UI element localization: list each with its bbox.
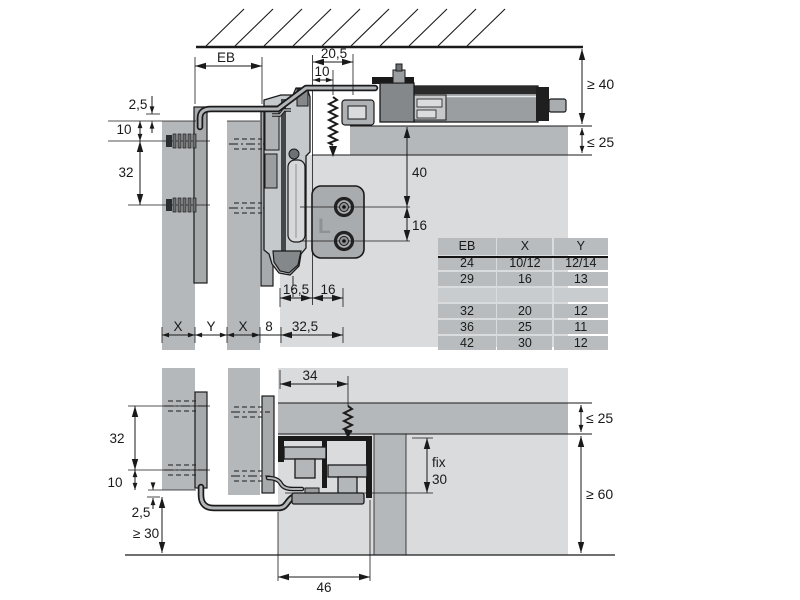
dim-label-x2: X [238, 319, 247, 334]
table-cell: 20 [497, 304, 552, 319]
dim-label-eb: EB [217, 50, 235, 65]
dim-label-46: 46 [316, 580, 331, 595]
table-cell: 29 [438, 272, 496, 287]
glide-base-plate [292, 493, 364, 504]
table-cell: 42 [438, 336, 496, 351]
dimension-min60: ≥ 60 [581, 436, 613, 553]
track-mount-block [380, 83, 414, 122]
table-header-eb: EB [438, 238, 496, 255]
inner-door-panel-upper [227, 121, 260, 350]
table-cell-empty [554, 288, 608, 303]
dim-label-10-track: 10 [314, 64, 329, 79]
dimension-max25-upper: ≤ 25 [582, 128, 614, 153]
outer-door-panel-lower [162, 368, 195, 490]
dim-label-34: 34 [302, 368, 318, 383]
technical-drawing-canvas: L ≥ 40 ≤ 25 EB 20,5 10 [0, 0, 800, 600]
cabinet-interior-lower [278, 368, 568, 403]
cabinet-bottom-panel [278, 403, 568, 434]
dim-label-x1: X [173, 319, 182, 334]
table-cell: 12/14 [554, 256, 608, 271]
dimension-10-lower: 10 [107, 470, 135, 490]
table-header-underline [438, 256, 608, 258]
dim-label-2-5-upper: 2,5 [129, 97, 148, 112]
dim-label-40: 40 [412, 165, 427, 180]
dim-label-32-lower: 32 [109, 431, 124, 446]
table-cell-empty [438, 288, 496, 303]
track-end-cap [536, 87, 549, 121]
table-cell: 36 [438, 320, 496, 335]
dim-label-16-right: 16 [320, 282, 335, 297]
dim-label-y: Y [206, 319, 215, 334]
dimension-min40: ≥ 40 [582, 49, 614, 124]
technical-drawing-page: L ≥ 40 ≤ 25 EB 20,5 10 [0, 0, 800, 600]
table-cell: 11 [554, 320, 608, 335]
dim-label-20-5: 20,5 [321, 46, 347, 61]
dimension-eb: EB [195, 50, 262, 104]
ceiling-hatch [196, 9, 583, 47]
dim-label-32-5: 32,5 [292, 319, 318, 334]
dimension-2-5-upper: 2,5 [129, 96, 160, 133]
plate-orientation-mark: L [318, 215, 331, 238]
table-cell: 13 [554, 272, 608, 287]
dim-label-min40: ≥ 40 [587, 76, 614, 92]
dimension-32-lower: 32 [109, 406, 135, 470]
table-cell: 12 [554, 336, 608, 351]
track-end-pin [549, 99, 566, 112]
dim-label-8: 8 [265, 319, 273, 334]
table-cell: 12 [554, 304, 608, 319]
dim-label-max25-lower: ≤ 25 [586, 410, 613, 426]
dim-label-10-lower: 10 [107, 475, 122, 490]
dim-label-10-side-upper: 10 [116, 122, 131, 137]
dim-label-min60: ≥ 60 [586, 486, 613, 502]
dim-label-32-upper: 32 [118, 165, 133, 180]
table-header-x: X [497, 238, 552, 255]
vertical-divider-panel [374, 434, 406, 555]
dim-label-fix: fix [432, 455, 446, 470]
dim-label-2-5-lower: 2,5 [132, 505, 151, 520]
adapter-plate-outer-upper [194, 107, 207, 283]
dim-label-min30: ≥ 30 [133, 526, 159, 541]
dimension-32-upper: 32 [118, 141, 140, 205]
table-cell: 32 [438, 304, 496, 319]
table-cell: 25 [497, 320, 552, 335]
dimension-10-side-upper: 10 [116, 121, 140, 141]
lower-section-drawing: 34 ≤ 25 ≥ 60 fix 30 32 10 2, [107, 368, 615, 595]
table-cell: 16 [497, 272, 552, 287]
outer-door-panel-upper [162, 121, 195, 350]
dim-label-max25-upper: ≤ 25 [587, 134, 614, 150]
table-cell: 10/12 [497, 256, 552, 271]
running-track [342, 64, 566, 125]
dim-label-16-5: 16,5 [283, 282, 309, 297]
table-cell: 30 [497, 336, 552, 351]
top-panel-screw-notch [310, 126, 350, 155]
dimension-max25-lower: ≤ 25 [581, 405, 613, 432]
dim-label-16: 16 [412, 218, 427, 233]
table-header-y: Y [554, 238, 608, 255]
dimension-2-5-lower: 2,5 [132, 483, 160, 520]
dim-label-30: 30 [432, 472, 447, 487]
table-cell: 24 [438, 256, 496, 271]
table-cell-empty [497, 288, 552, 303]
track-adjust-screw [393, 70, 405, 83]
